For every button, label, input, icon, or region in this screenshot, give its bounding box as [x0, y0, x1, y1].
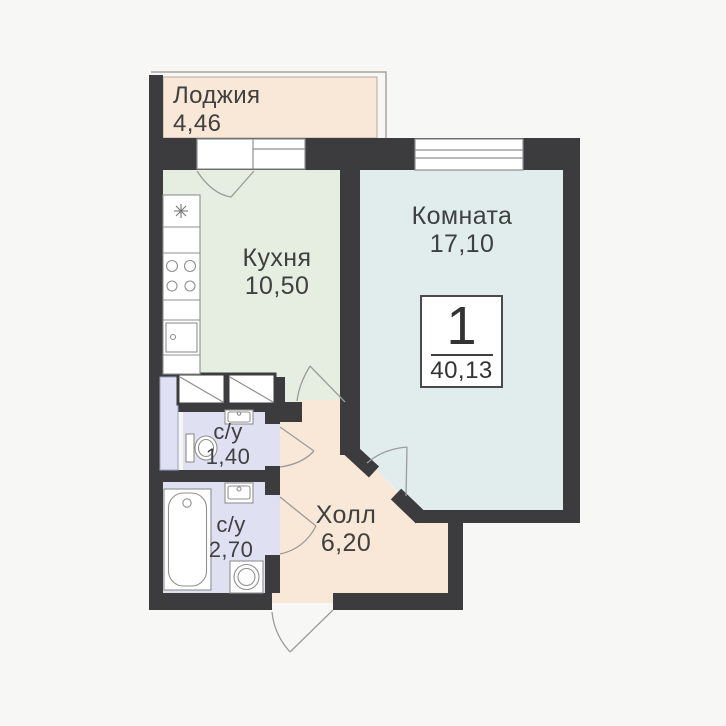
duct-shaft: [160, 377, 178, 470]
room-name: Кухня: [243, 244, 312, 272]
room-name: с/у: [206, 419, 250, 444]
unit-summary-badge: 1 40,13: [420, 295, 503, 388]
bathroom-1-doorway-floor: [265, 424, 280, 466]
room-label-bathroom-2: с/у 2,70: [209, 512, 253, 562]
bathroom-2-doorway-floor: [265, 495, 280, 555]
washbasin-2-icon: [225, 483, 253, 503]
room-name: Холл: [316, 501, 377, 529]
room-label-hall: Холл 6,20: [316, 501, 377, 557]
kitchen-fixtures: [163, 195, 200, 374]
fridge-icon: [174, 204, 188, 218]
balcony-door-window: [197, 139, 305, 169]
room-label-loggia: Лоджия 4,46: [173, 82, 260, 138]
room-name: Лоджия: [173, 82, 260, 110]
floor-plan-page: Лоджия 4,46 Кухня 10,50 Комната 17,10 с/…: [0, 0, 726, 726]
room-area: 10,50: [243, 272, 312, 300]
room-name: Комната: [412, 202, 513, 230]
living-room-window: [415, 139, 523, 170]
room-area: 1,40: [206, 444, 250, 469]
room-area: 17,10: [412, 230, 513, 258]
total-area: 40,13: [422, 356, 501, 386]
closet-boxes: [178, 374, 275, 404]
floor-plan: [0, 0, 726, 726]
room-area: 4,46: [173, 110, 260, 138]
bathtub-icon: [164, 489, 211, 590]
room-label-living-room: Комната 17,10: [412, 202, 513, 258]
kitchen-sink-icon: [166, 323, 197, 352]
washing-machine-icon: [230, 561, 263, 593]
room-area: 2,70: [209, 537, 253, 562]
kitchen-doorway-floor: [302, 400, 340, 422]
rooms-count: 1: [422, 298, 501, 354]
room-area: 6,20: [316, 529, 377, 557]
room-name: с/у: [209, 512, 253, 537]
entrance-doorway-floor: [272, 593, 333, 603]
room-label-bathroom-1: с/у 1,40: [206, 419, 250, 469]
room-label-kitchen: Кухня 10,50: [243, 244, 312, 300]
